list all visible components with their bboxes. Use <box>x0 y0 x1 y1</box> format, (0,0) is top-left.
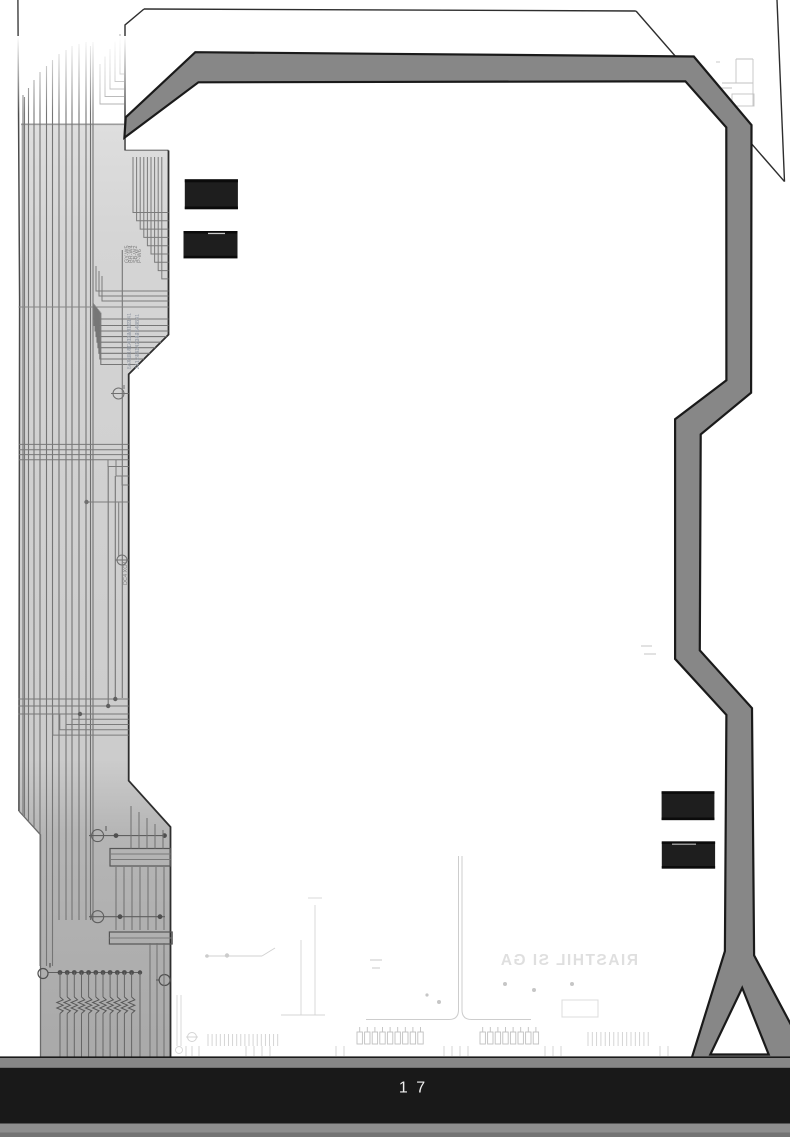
svg-text:RIASTHIL SI GA: RIASTHIL SI GA <box>499 952 638 969</box>
svg-text:2412: 2412 <box>135 357 141 369</box>
svg-text:P-W6: P-W6 <box>137 249 143 263</box>
svg-text:1 7: 1 7 <box>399 1080 427 1097</box>
svg-text:DC4 XO4: DC4 XO4 <box>123 561 129 585</box>
svg-text:8A41: 8A41 <box>127 357 133 370</box>
